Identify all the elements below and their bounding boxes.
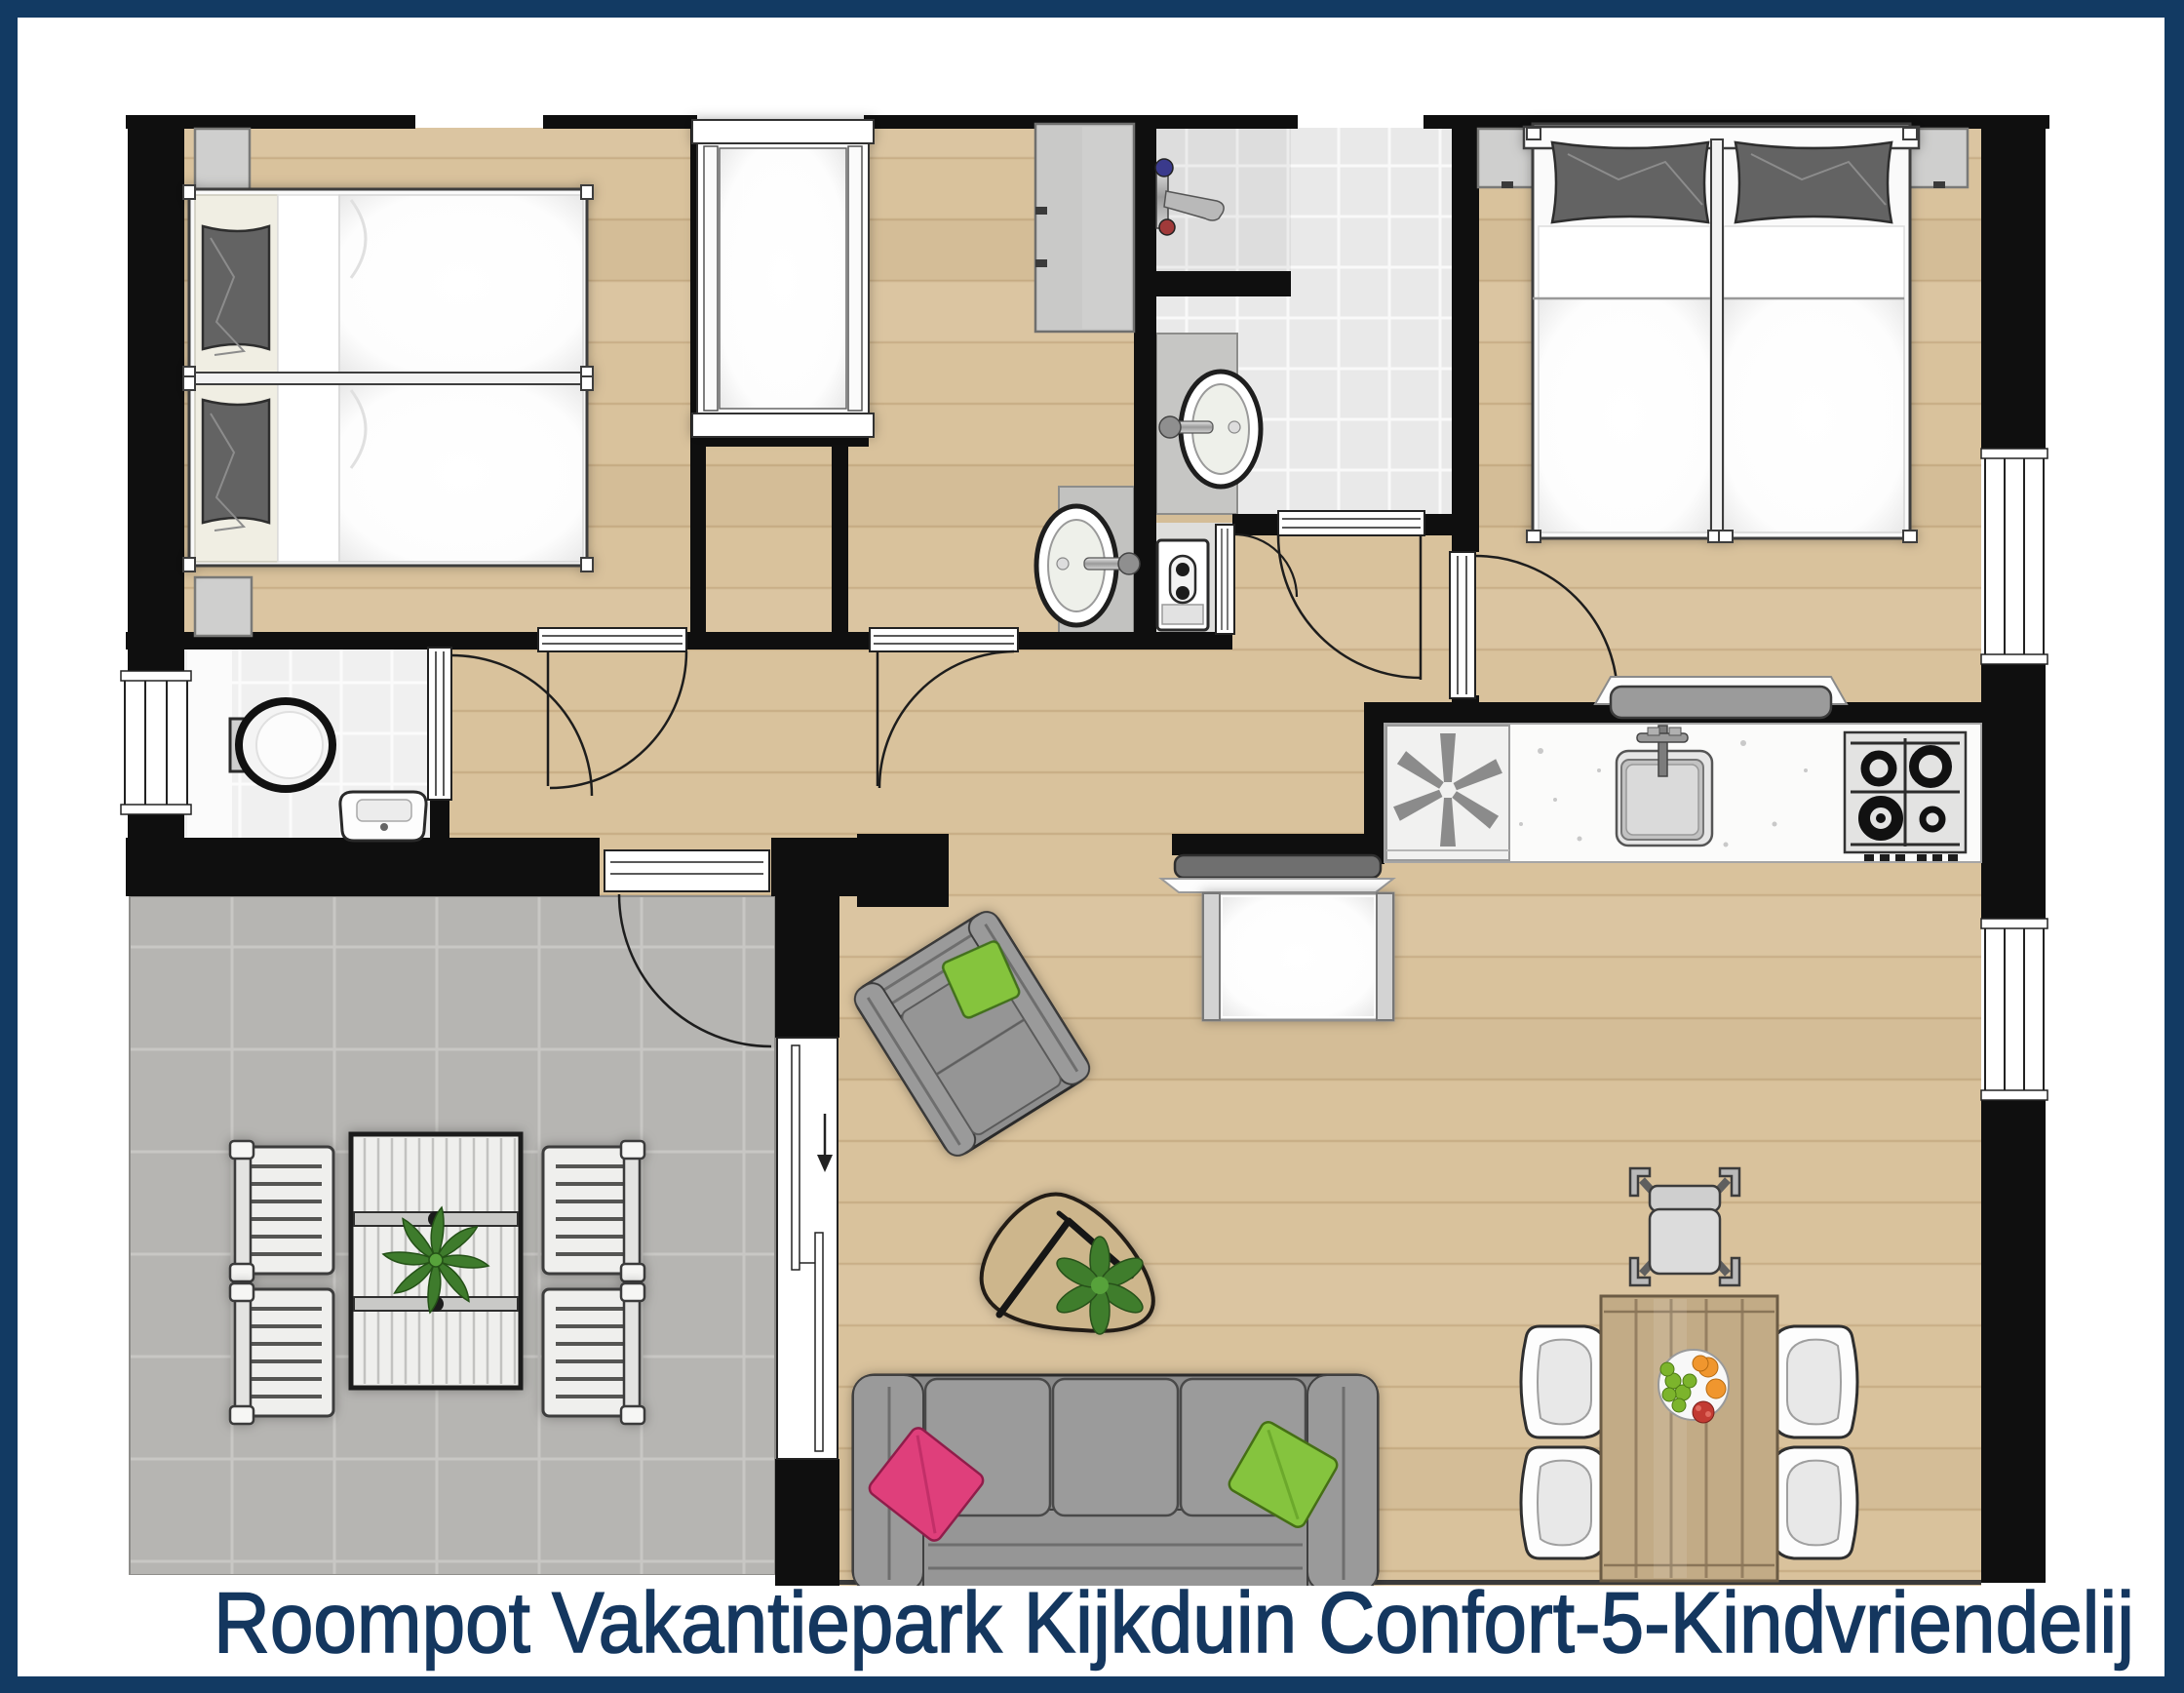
svg-text:Roompot Vakantiepark Kijkduin: Roompot Vakantiepark Kijkduin Confort-5-… [214,1574,2134,1671]
